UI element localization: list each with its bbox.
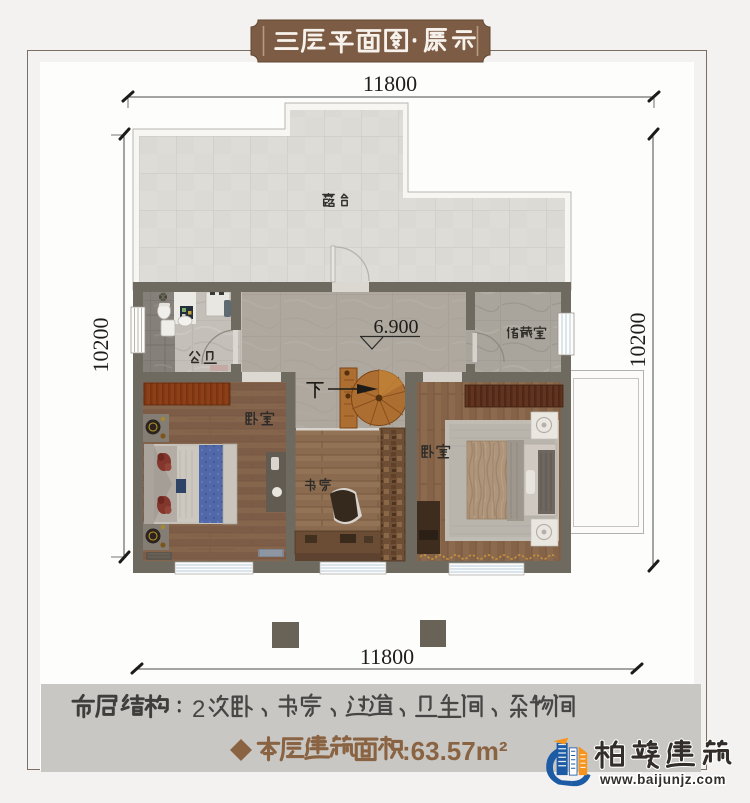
svg-text:11800: 11800 [363, 71, 417, 96]
svg-text:2: 2 [192, 696, 205, 723]
svg-text::63.57m²: :63.57m² [402, 736, 508, 766]
svg-text:www.baijunjz.com: www.baijunjz.com [599, 772, 726, 787]
svg-text:10200: 10200 [88, 318, 113, 373]
svg-text:10200: 10200 [625, 313, 650, 368]
svg-text:6.900: 6.900 [374, 316, 419, 338]
svg-text:11800: 11800 [360, 644, 414, 669]
